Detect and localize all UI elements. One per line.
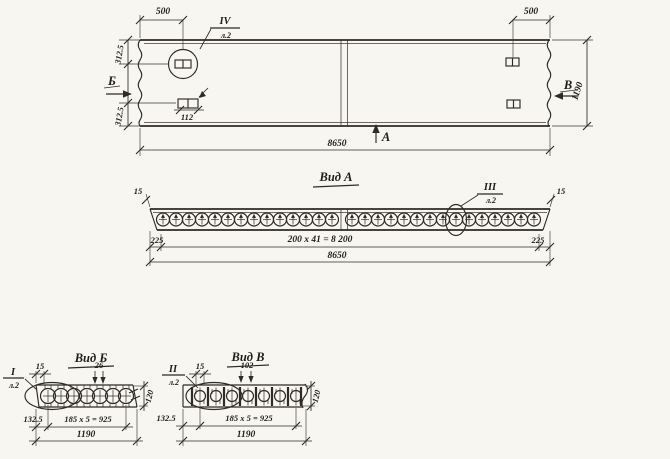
dim-225-left: 225: [150, 235, 165, 245]
view-b: Вид Б I л.2 15 26 132.5 185 x 5 = 925: [3, 351, 156, 446]
flag-i-number: I: [10, 367, 16, 378]
dim-1325: 132.5: [23, 414, 43, 424]
plan-view: IV л.2 500 500 312.5 312.5 Б 112 В: [104, 7, 593, 156]
panel-left-rough-edge: [138, 40, 142, 126]
dim-1190: 1190: [77, 430, 96, 440]
dimension-ticks: [142, 196, 555, 266]
dim-1325: 132.5: [156, 413, 176, 423]
flag-leader: [461, 195, 478, 206]
channel-row: [192, 387, 302, 406]
engineering-drawing-sheet: IV л.2 500 500 312.5 312.5 Б 112 В: [0, 0, 670, 459]
dim-120: 120: [143, 388, 156, 404]
flag-ii-number: II: [168, 364, 178, 375]
dim-102: 102: [241, 360, 255, 370]
arrowhead: [199, 91, 206, 98]
arrowhead-right: [123, 90, 132, 97]
dim-500-left: 500: [156, 7, 171, 17]
flag-leader: [200, 29, 211, 49]
flag-leader: [25, 379, 37, 390]
strip-left-edge: [36, 385, 39, 407]
view-a-title: Вид А: [319, 170, 353, 184]
dim-120: 120: [310, 388, 323, 404]
flag-iv-sheet: л.2: [220, 31, 231, 40]
dim-500-right: 500: [524, 7, 539, 17]
dim-1190: 1190: [237, 430, 256, 440]
flag-iii-sheet: л.2: [485, 196, 496, 205]
strip-right-break-edge: [302, 384, 308, 408]
dimension-ticks: [124, 16, 591, 154]
dim-3125-bottom: 312.5: [112, 105, 125, 127]
arrowheads-down: [92, 377, 105, 384]
technical-drawing: IV л.2 500 500 312.5 312.5 Б 112 В: [0, 0, 670, 459]
flag-ii-sheet: л.2: [168, 378, 179, 387]
embedded-plate: [506, 58, 519, 66]
view-label-v: В: [563, 78, 572, 92]
arrowheads-down: [238, 376, 253, 383]
panel-right-rough-edge: [547, 40, 551, 126]
dim-1190: 1190: [570, 81, 585, 102]
title-underline: [68, 366, 114, 368]
dim-185x5: 185 x 5 = 925: [64, 414, 112, 424]
embedded-plate: [507, 100, 520, 108]
view-a: Вид А III л.2 15 15 225 200 x 41 = 8 200…: [134, 170, 566, 266]
dim-26: 26: [94, 360, 104, 370]
void-holes-row: [157, 213, 541, 226]
view-label-b: Б: [107, 74, 116, 88]
flag-i-sheet: л.2: [8, 381, 19, 390]
dim-15-right: 15: [557, 186, 566, 196]
dim-185x5: 185 x 5 = 925: [225, 413, 273, 423]
dim-112: 112: [181, 112, 194, 122]
dim-15-left: 15: [134, 186, 143, 196]
flag-iv-number: IV: [218, 16, 231, 27]
dim-8650-plan: 8650: [328, 139, 347, 149]
embedded-plate: [178, 99, 198, 108]
dim-3125-top: 312.5: [112, 43, 125, 65]
view-label-a: А: [381, 130, 390, 144]
arrowhead-left: [554, 92, 563, 99]
title-underline: [313, 185, 359, 187]
dim-15: 15: [196, 361, 205, 371]
embedded-plate: [175, 60, 191, 68]
dim-15: 15: [36, 361, 45, 371]
dim-200x41: 200 x 41 = 8 200: [287, 235, 353, 245]
view-v: Вид В II л.2 15 102 132.5 185 x 5 = 925: [156, 350, 322, 446]
anchor-holes-row: [41, 386, 134, 407]
flag-iii-number: III: [483, 182, 497, 193]
dim-8650-view-a: 8650: [328, 251, 347, 261]
